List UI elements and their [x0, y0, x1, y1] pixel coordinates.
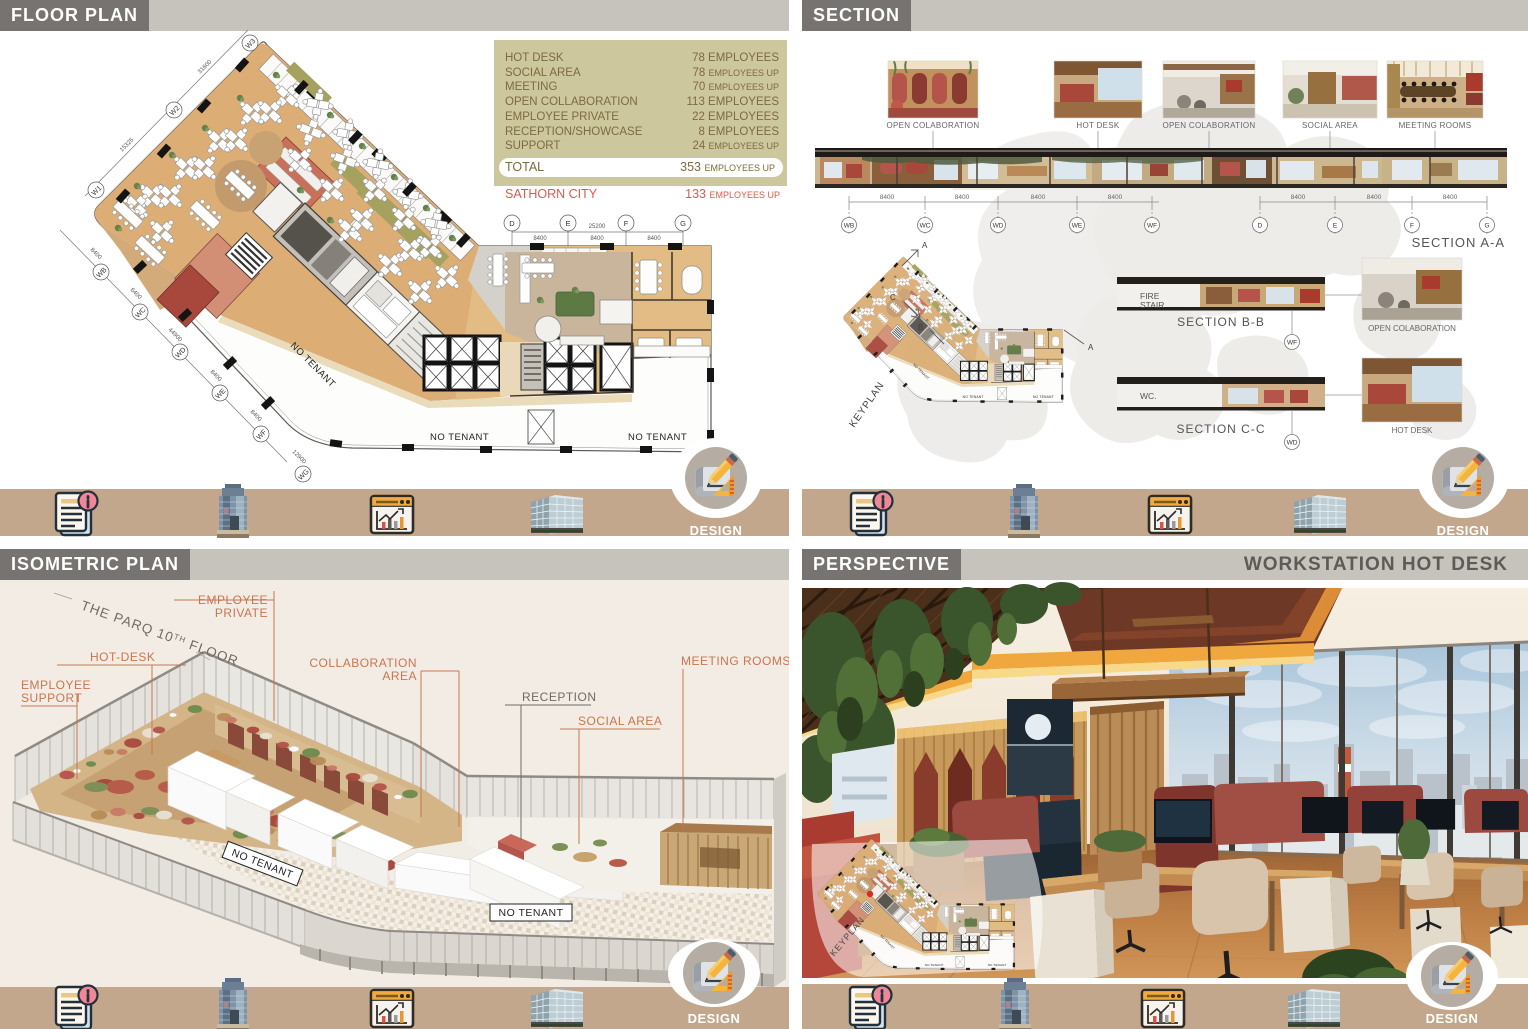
svg-text:OPEN COLABORATION: OPEN COLABORATION [1368, 324, 1456, 333]
svg-text:8400: 8400 [533, 236, 547, 242]
svg-text:SOCIAL AREA: SOCIAL AREA [1302, 121, 1358, 130]
svg-text:8400: 8400 [209, 369, 223, 383]
svg-text:8400: 8400 [590, 236, 604, 242]
svg-text:8400: 8400 [1108, 194, 1123, 201]
svg-text:6400: 6400 [129, 287, 143, 301]
svg-text:A: A [1088, 343, 1094, 352]
svg-text:D: D [509, 219, 515, 228]
svg-text:8400: 8400 [1367, 194, 1382, 201]
svg-text:OPEN COLABORATION: OPEN COLABORATION [887, 121, 980, 130]
svg-text:8400: 8400 [89, 247, 103, 261]
svg-text:WC.: WC. [1140, 391, 1157, 401]
svg-text:DESIGN: DESIGN [690, 523, 743, 538]
svg-text:WC: WC [920, 223, 931, 230]
svg-text:F: F [624, 219, 629, 228]
svg-text:WF: WF [1287, 340, 1297, 347]
svg-text:DESIGN: DESIGN [1437, 523, 1490, 538]
svg-text:OPEN COLABORATION: OPEN COLABORATION [1163, 121, 1256, 130]
svg-text:RECEPTION: RECEPTION [522, 690, 597, 704]
svg-text:C: C [890, 293, 896, 302]
svg-text:25200: 25200 [589, 224, 606, 230]
svg-text:WB: WB [844, 223, 854, 230]
svg-text:D: D [1258, 223, 1263, 230]
svg-text:A: A [922, 241, 928, 250]
svg-text:SECTION A-A: SECTION A-A [1412, 235, 1505, 250]
svg-text:E: E [1333, 223, 1338, 230]
svg-text:8400: 8400 [1291, 194, 1306, 201]
svg-text:B: B [918, 323, 923, 332]
svg-text:DESIGN: DESIGN [1426, 1011, 1479, 1026]
svg-text:8400: 8400 [880, 194, 895, 201]
svg-text:MEETING ROOMS: MEETING ROOMS [1399, 121, 1472, 130]
svg-text:KEYPLAN: KEYPLAN [847, 380, 886, 430]
svg-text:EMPLOYEESUPPORT: EMPLOYEESUPPORT [21, 678, 91, 705]
svg-text:DESIGN: DESIGN [688, 1011, 741, 1026]
svg-text:WE: WE [1072, 223, 1083, 230]
svg-text:8400: 8400 [647, 236, 661, 242]
svg-text:HOT-DESK: HOT-DESK [90, 650, 155, 664]
svg-text:SOCIAL AREA: SOCIAL AREA [578, 714, 662, 728]
svg-text:8400: 8400 [1031, 194, 1046, 201]
svg-text:8400: 8400 [1443, 194, 1458, 201]
svg-text:WF: WF [1147, 223, 1157, 230]
svg-text:G: G [680, 219, 686, 228]
svg-text:WD: WD [993, 223, 1004, 230]
svg-text:HOT DESK: HOT DESK [1076, 121, 1120, 130]
svg-text:E: E [565, 219, 570, 228]
svg-text:F: F [1410, 223, 1414, 230]
svg-text:EMPLOYEEPRIVATE: EMPLOYEEPRIVATE [198, 593, 268, 620]
svg-text:SECTION B-B: SECTION B-B [1177, 315, 1265, 329]
svg-text:G: G [1484, 223, 1489, 230]
svg-text:MEETING ROOMS: MEETING ROOMS [681, 654, 789, 668]
svg-text:COLLABORATIONAREA: COLLABORATIONAREA [309, 656, 417, 683]
svg-text:8400: 8400 [249, 409, 263, 423]
svg-text:8400: 8400 [955, 194, 970, 201]
svg-text:NO TENANT: NO TENANT [499, 907, 564, 919]
svg-text:15325: 15325 [119, 137, 136, 154]
